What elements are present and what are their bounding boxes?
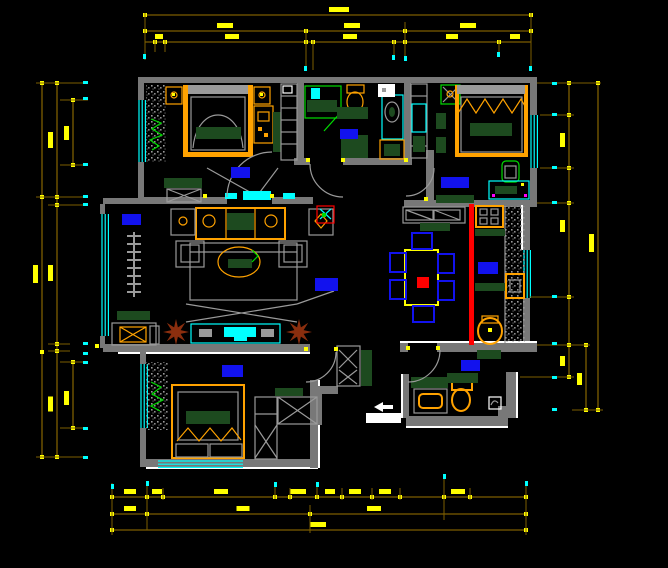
dim-endpoint-mark — [404, 56, 407, 61]
wall-bathroombr-left — [403, 374, 409, 418]
plant-star-right — [286, 319, 312, 345]
dim-text — [33, 265, 38, 283]
wall-top — [138, 77, 537, 83]
dim-text — [560, 220, 565, 232]
door-jamb-marker — [341, 158, 345, 162]
room-label-balcony — [122, 214, 141, 225]
dim-text — [48, 265, 53, 281]
shoe-cabinet-shelf — [361, 350, 372, 386]
bed-tr-blanket — [470, 123, 512, 136]
dim-text — [510, 34, 520, 39]
dim-endpoint-mark — [83, 342, 88, 345]
wall-left-upper — [138, 83, 144, 100]
dim-text — [560, 356, 565, 366]
new-wall-red-line — [469, 204, 474, 345]
radiator-fin-2 — [127, 243, 141, 245]
tv-bedroomtl-b — [243, 191, 271, 200]
vanity-top-a — [337, 107, 368, 119]
dim-endpoint-mark — [83, 163, 88, 166]
door-jamb-marker — [406, 346, 410, 350]
radiator-fin-5 — [127, 267, 141, 269]
dim-endpoint-mark — [83, 203, 88, 206]
dim-text — [48, 132, 53, 148]
kitchen-counter-a — [475, 229, 505, 236]
desk-tr-dot-c — [524, 194, 527, 197]
door-jamb-marker — [203, 194, 207, 198]
door-jamb-marker — [304, 347, 308, 351]
wall-foyer-h — [316, 386, 338, 394]
wall-bedroomtl-bottom-a — [138, 197, 227, 204]
edge-bathroombr-bottom — [406, 426, 508, 428]
entry-arrow-tail — [383, 405, 393, 409]
dim-endpoint-mark — [143, 54, 146, 59]
dim-endpoint-mark — [392, 55, 395, 60]
shower-shelf — [307, 100, 337, 112]
wall-right-mid — [530, 168, 537, 205]
dim-endpoint-mark — [304, 66, 307, 71]
shelf-tr-b — [436, 137, 446, 153]
door-jamb-marker — [436, 346, 440, 350]
room-label-bedroom-top-left — [231, 167, 250, 178]
dim-text — [589, 234, 594, 252]
balcony-bench — [117, 311, 150, 320]
tv-speaker-right — [261, 329, 274, 337]
dim-endpoint-mark — [443, 474, 446, 479]
door-jamb-marker — [270, 194, 274, 198]
shelf-tr-a — [436, 113, 446, 129]
sideboard-shelf — [420, 223, 450, 231]
shower-head — [311, 88, 320, 99]
dim-text — [560, 133, 565, 147]
radiator-fin-1 — [127, 235, 141, 237]
dim-endpoint-mark — [525, 481, 528, 486]
dim-text — [214, 489, 228, 494]
dim-endpoint-mark — [83, 81, 88, 84]
wall-right-top — [530, 77, 537, 115]
dim-text — [217, 23, 233, 28]
bed-tr-headboard — [457, 85, 525, 94]
radiator-fin-6 — [127, 275, 141, 277]
dresser-tl-knob-b — [264, 133, 268, 137]
dim-endpoint-mark — [83, 195, 88, 198]
dim-endpoint-mark — [552, 166, 557, 169]
kettle-dot — [488, 328, 492, 332]
door-jamb-marker — [404, 158, 408, 162]
dim-endpoint-mark — [111, 484, 114, 489]
dim-endpoint-mark — [83, 361, 88, 364]
dim-text — [329, 7, 349, 12]
dim-text — [577, 373, 582, 385]
desk-tr-pad — [495, 186, 517, 194]
dim-text — [349, 489, 361, 494]
counter-br-b — [447, 373, 478, 383]
dim-endpoint-mark — [552, 113, 557, 116]
coffee-plant-leaf — [228, 259, 252, 268]
bed-tl-blanket — [196, 127, 241, 139]
dresser-tl-knob-a — [258, 127, 262, 131]
dim-endpoint-mark — [83, 456, 88, 459]
dim-endpoint-mark — [497, 52, 500, 57]
bed-tl-rail-left — [183, 85, 188, 157]
wall-bathroombr-step — [498, 406, 508, 418]
panel-glyph-dot — [322, 213, 326, 217]
dim-endpoint-mark — [316, 482, 319, 487]
dim-text — [310, 522, 326, 527]
dim-text — [64, 126, 69, 140]
dim-text — [451, 489, 465, 494]
tv-screen — [224, 327, 256, 337]
dim-endpoint-mark — [274, 482, 277, 487]
cabinet-top-fill — [384, 144, 400, 156]
bed-tr-frame-left — [455, 85, 459, 157]
floor-plan-canvas[interactable] — [0, 0, 668, 568]
wall-bedroombl-bottom — [146, 459, 318, 467]
tv-bedroomtl-c — [283, 193, 295, 199]
room-label-bedroom-top-right — [441, 177, 469, 188]
dim-endpoint-mark — [83, 352, 88, 355]
dim-text — [446, 34, 458, 39]
dim-text — [237, 506, 250, 511]
edge-bathroombr-right — [516, 372, 518, 418]
bench-tl-top — [164, 178, 202, 188]
room-label-bathroom-bottom — [461, 360, 480, 371]
wardrobe-tr-fill — [413, 136, 425, 152]
dim-endpoint-mark — [552, 342, 557, 345]
dim-text — [152, 489, 162, 494]
room-label-kitchen — [478, 262, 498, 274]
wall-bedroombl-left-bottom — [140, 428, 146, 467]
dim-text — [325, 489, 335, 494]
bed-bl-blanket — [186, 411, 230, 424]
dim-text — [225, 34, 239, 39]
dim-endpoint-mark — [552, 408, 557, 411]
lamp-dot-right — [260, 93, 263, 96]
bed-tr-frame-foot — [455, 153, 528, 157]
dim-text — [64, 391, 69, 405]
cad-viewport — [0, 0, 668, 568]
dim-text — [124, 489, 136, 494]
edge-living-bottom — [118, 352, 310, 354]
dim-endpoint-mark — [552, 376, 557, 379]
vent-niche-dot — [382, 88, 386, 92]
dim-text — [290, 489, 306, 494]
shelf-strip-tl — [273, 112, 281, 152]
bed-tl-rail-foot — [183, 152, 253, 157]
threshold-bedroomtr — [436, 195, 474, 203]
door-jamb-marker — [334, 347, 338, 351]
desk-tr-dot-b — [492, 194, 495, 197]
radiator-fin-7 — [127, 283, 141, 285]
sofa-cushion — [227, 213, 254, 230]
wall-bathroomt-right — [404, 83, 411, 162]
dining-table-center — [417, 277, 429, 288]
dim-endpoint-mark — [83, 427, 88, 430]
basin-top-drain — [389, 107, 395, 117]
dim-text — [124, 506, 136, 511]
vent-niche-top — [378, 84, 395, 97]
radiator-fin-3 — [127, 251, 141, 253]
tv-speaker-left — [199, 329, 212, 337]
desk-tr-dot-a — [521, 183, 524, 186]
room-label-bedroom-bottom — [222, 365, 243, 377]
dim-text — [48, 397, 53, 412]
bed-tl-rail-right — [248, 85, 253, 157]
wall-balcony-top-stub — [100, 204, 105, 214]
dim-text — [344, 23, 360, 28]
dim-endpoint-mark — [146, 481, 149, 486]
dim-endpoint-mark — [552, 82, 557, 85]
dim-text — [155, 34, 163, 39]
counter-br-a — [411, 377, 448, 388]
dim-text — [367, 506, 381, 511]
dim-endpoint-mark — [529, 66, 532, 71]
dim-text — [379, 489, 391, 494]
entry-threshold — [366, 413, 401, 423]
door-jamb-marker — [95, 344, 99, 348]
edge-bathroombr-left — [401, 374, 403, 418]
radiator-fin-4 — [127, 259, 141, 261]
wall-bathroomt-left — [297, 83, 304, 158]
hatch-closet-top-left — [146, 85, 166, 162]
plant-star-left — [163, 319, 189, 345]
dim-tick — [40, 350, 44, 354]
hatch-bedroombl-left — [146, 362, 168, 430]
bed-tr-frame-right — [524, 85, 528, 157]
dim-endpoint-mark — [552, 295, 557, 298]
wall-balcony-step — [103, 198, 144, 204]
radiator-fin-8 — [127, 291, 141, 293]
tv-base — [234, 337, 247, 341]
wall-bedroombl-left-top — [140, 352, 146, 364]
counter-br-c — [477, 350, 501, 359]
room-label-living-room — [315, 278, 338, 291]
wall-bathroombr-bottom — [406, 416, 508, 426]
room-label-bathroom-top — [340, 129, 358, 139]
floor-plan-drawing — [0, 0, 668, 568]
kitchen-counter-b — [475, 283, 505, 291]
dim-endpoint-mark — [552, 201, 557, 204]
door-jamb-marker — [424, 197, 428, 201]
lamp-dot-left — [172, 93, 175, 96]
bed-tl-headboard — [188, 85, 248, 94]
dim-endpoint-mark — [83, 97, 88, 100]
shelf-bl — [275, 388, 303, 396]
dim-text — [460, 23, 476, 28]
door-jamb-marker — [306, 158, 310, 162]
dim-text — [343, 34, 357, 39]
